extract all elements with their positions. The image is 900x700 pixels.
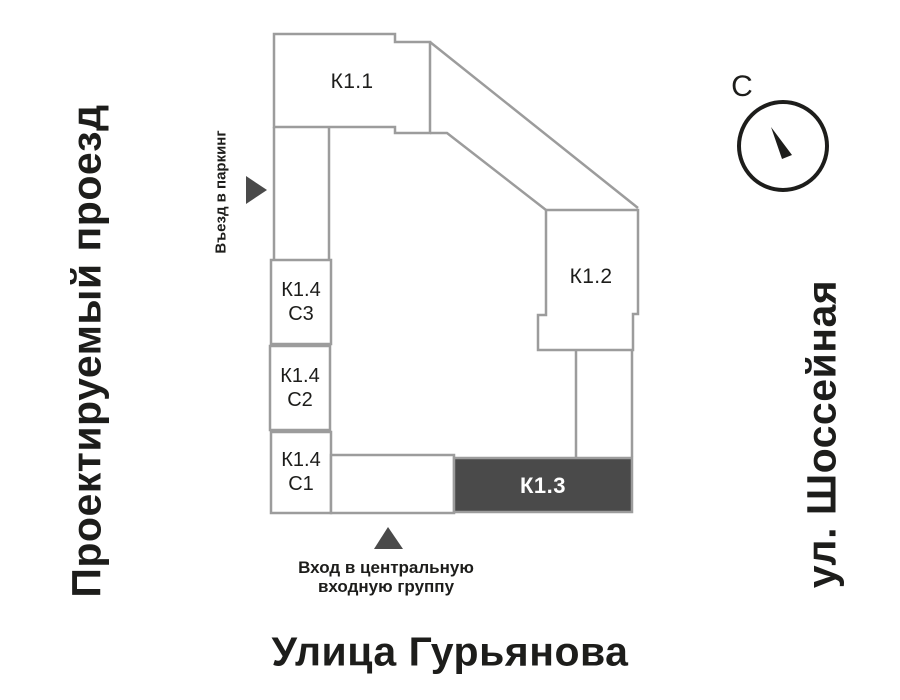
site-plan-map: К1.1 К1.2 К1.3 К1.4 С3 К1.4 С2 К1.4 С1 В… [0,0,900,700]
left-strip-lines [274,127,329,261]
building-k13-shape[interactable] [454,458,632,512]
corridor-lines [576,350,632,457]
building-k14-c3-shape[interactable] [271,260,331,344]
parking-entrance-arrow-icon [246,176,267,204]
building-k11-shape[interactable] [274,34,430,133]
building-k14-c2-shape[interactable] [270,346,330,430]
building-k14-c1-shape[interactable] [271,432,331,513]
central-entrance-arrow-icon [374,527,403,549]
bottom-strip-shape [331,455,454,513]
wing-diagonal-lines [430,42,638,210]
building-k12-shape[interactable] [538,210,638,350]
compass-needle-icon [771,127,792,159]
site-plan-drawing [0,0,900,700]
